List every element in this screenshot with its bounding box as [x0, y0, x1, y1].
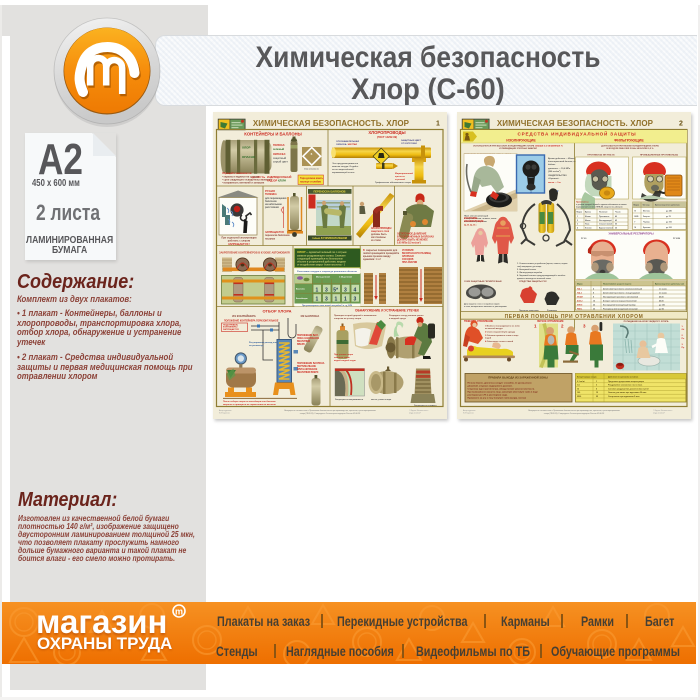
- svg-text:4: 4: [577, 227, 578, 230]
- svg-text:Графическое обозначение хлора: Графическое обозначение хлора: [375, 181, 412, 184]
- svg-text:до 240: до 240: [666, 209, 672, 212]
- svg-text:100: 100: [577, 392, 580, 394]
- svg-text:хлора (ПБХ-93). Утверждены Гос: хлора (ПБХ-93). Утверждены Гостехгортехн…: [544, 413, 604, 415]
- svg-text:Контейнеры: Контейнеры: [296, 297, 308, 300]
- svg-text:4: 4: [593, 287, 594, 290]
- svg-text:8: 8: [593, 292, 594, 294]
- svg-text:Мало до батай: Мало до батай: [316, 276, 331, 279]
- svg-text:3: 3: [344, 287, 347, 293]
- svg-text:смочить ткань: смочить ткань: [334, 357, 350, 359]
- svg-text:Часов: Часов: [615, 212, 621, 214]
- svg-text:ПРИ АВАРИИ: ПРИ АВАРИИ: [402, 261, 418, 264]
- svg-text:любой хранящейся проверяйте: любой хранящейся проверяйте: [363, 252, 400, 255]
- svg-text:Красная: Красная: [643, 227, 650, 229]
- svg-text:защитного слоя: защитного слоя: [371, 231, 390, 233]
- svg-text:Г: Г: [635, 221, 636, 223]
- svg-text:Смертельно при вдыхании 5 мин: Смертельно при вдыхании 5 мин: [608, 396, 640, 398]
- svg-text:0,1 мг/м³: 0,1 мг/м³: [577, 380, 585, 383]
- svg-text:4. Звуковой сигнал предупрежда: 4. Звуковой сигнал предупреждающий о нео…: [517, 274, 566, 277]
- svg-text:2: 2: [679, 121, 683, 128]
- svg-text:Прижимать ко рту и носу влажну: Прижимать ко рту и носу влажную ткань (ш…: [468, 397, 527, 400]
- svg-text:ПШ-1: ПШ-1: [577, 288, 582, 290]
- svg-text:Нельзя бежать, двигаться следу: Нельзя бежать, двигаться следует спокойн…: [468, 382, 533, 385]
- svg-text:зеленый: зеленый: [273, 147, 285, 151]
- svg-text:Концентрация хлора: Концентрация хлора: [577, 376, 597, 378]
- svg-text:(ГОСТ 14202-69): (ГОСТ 14202-69): [377, 135, 397, 139]
- svg-text:Аппарат сжатого воздуха баллон: Аппарат сжатого воздуха баллонный: [603, 299, 637, 302]
- svg-text:ОКРАСКА: ЖЕЛТАЯ: ОКРАСКА: ЖЕЛТАЯ: [336, 143, 357, 146]
- svg-text:СОСУДОВ: СОСУДОВ: [402, 259, 414, 261]
- svg-text:только В ГОРИЗОНТАЛЬНОМ: только В ГОРИЗОНТАЛЬНОМ: [312, 237, 347, 240]
- svg-text:ТЕЛЕЖКА: ТЕЛЕЖКА: [265, 193, 277, 196]
- svg-text:хлора (ПБХ-93). Утверждены Гос: хлора (ПБХ-93). Утверждены Гостехгортехн…: [300, 413, 360, 415]
- svg-text:Предельно допустимая концентра: Предельно допустимая концентрация: [608, 381, 644, 383]
- svg-text:до 70: до 70: [666, 216, 671, 218]
- svg-text:до 60: до 60: [659, 308, 664, 310]
- svg-text:УСЛОВИЯ: УСЛОВИЯ: [402, 250, 414, 252]
- svg-text:Клапан: Клапан: [585, 228, 591, 230]
- svg-text:БЕЗОПАСНОГО РАЗМЕЩ.: БЕЗОПАСНОГО РАЗМЕЩ.: [402, 252, 432, 255]
- svg-text:ПОЛОЖЕНИЕ БАЛ-: ПОЛОЖЕНИЕ БАЛ-: [297, 334, 319, 337]
- svg-text:ХИМИЧЕСКАЯ БЕЗОПАСНОСТЬ. ХЛОР: ХИМИЧЕСКАЯ БЕЗОПАСНОСТЬ. ХЛОР: [253, 119, 410, 128]
- svg-text:УНИВЕРСАЛЬНЫЕ РЕСПИРАТОРЫ: УНИВЕРСАЛЬНЫЕ РЕСПИРАТОРЫ: [609, 232, 654, 236]
- svg-text:ИЗОЛИРУЮЩИЕ: ИЗОЛИРУЮЩИЕ: [506, 139, 536, 143]
- svg-text:2.: 2.: [682, 335, 684, 337]
- svg-text:После отбора хлора из контейне: После отбора хлора из контейнера или бал…: [223, 400, 276, 403]
- svg-text:ПОЛОЖЕНИЕ КОНТЕЙНЕРА ГОРИЗОНТА: ПОЛОЖЕНИЕ КОНТЕЙНЕРА ГОРИЗОНТАЛЬНОЕ: [224, 320, 279, 323]
- svg-text:12: 12: [577, 388, 579, 390]
- svg-text:4 Обеспечить тепло и покой: 4 Обеспечить тепло и покой: [485, 340, 514, 343]
- svg-text:Защитн.: Защитн.: [643, 216, 651, 218]
- svg-text:Изолирующий противогаз автоном: Изолирующий противогаз автономный: [603, 295, 638, 298]
- svg-text:тки) защищают до конца: тки) защищают до конца: [517, 266, 542, 268]
- svg-text:В ОПОРОЖНЕННЫХ БАЛЛОНАХ: В ОПОРОЖНЕННЫХ БАЛЛОНАХ: [397, 236, 434, 239]
- svg-text:• исправность вентилей и заглу: • исправность вентилей и заглушек: [222, 182, 265, 185]
- svg-text:расстояния: расстояния: [265, 206, 279, 209]
- svg-text:25: 25: [596, 396, 598, 398]
- svg-text:запахом раздражающего запаха.: запахом раздражающего запаха. Сжижают: [297, 256, 347, 258]
- svg-text:Запрещается выравнивать: Запрещается выравнивать: [335, 399, 364, 401]
- svg-text:Выпущено в соответствии с Прав: Выпущено в соответствии с Правилами безо…: [284, 410, 375, 412]
- svg-text:ЛЕГКОЕ ОТРАВЛЕНИЕ: ЛЕГКОЕ ОТРАВЛЕНИЕ: [537, 320, 564, 323]
- svg-text:ОТ КОРРОЗИИ: ОТ КОРРОЗИИ: [401, 143, 417, 145]
- svg-text:нержавеющей стали: нержавеющей стали: [332, 171, 355, 174]
- svg-text:При возможности смочить лицо,: При возможности смочить лицо, смоченую о…: [468, 391, 539, 394]
- svg-text:до 120: до 120: [659, 304, 665, 306]
- svg-text:3: 3: [577, 224, 578, 226]
- svg-text:РУ 60М: РУ 60М: [673, 238, 680, 240]
- svg-text:Проверка старой дыркой с аммиа: Проверка старой дыркой с аммиачном: [334, 314, 377, 317]
- svg-text:ЗАПРЕЩАЕТСЯ: ЗАПРЕЩАЕТСЯ: [223, 328, 239, 331]
- svg-text:труда и жизни»: труда и жизни»: [653, 413, 665, 415]
- svg-text:до 100: до 100: [666, 227, 672, 229]
- svg-text:Знак опасности: Знак опасности: [304, 169, 319, 171]
- svg-text:труда и жизни»: труда и жизни»: [409, 413, 421, 415]
- svg-text:Л.И.Харченко: Л.И.Харченко: [219, 413, 230, 415]
- svg-text:ВВЕРХ: ВВЕРХ: [297, 344, 305, 346]
- svg-text:2: 2: [561, 324, 564, 329]
- svg-text:Тип кор.: Тип кор.: [643, 205, 651, 207]
- svg-text:место утечки хлора: место утечки хлора: [371, 399, 392, 401]
- svg-text:ЗАЩИТНЫЙ ЦВЕТ: ЗАЩИТНЫЙ ЦВЕТ: [401, 139, 422, 142]
- svg-text:40: 40: [615, 215, 617, 218]
- svg-text:нормальной степени ППВ-95, защ: нормальной степени ППВ-95, защита газ-об…: [576, 206, 623, 209]
- svg-text:ПРАВИЛА ВЫХОДА ИЗ ЗАРАЖЕННОЙ З: ПРАВИЛА ВЫХОДА ИЗ ЗАРАЖЕННОЙ ЗОНЫ: [488, 376, 548, 380]
- svg-text:защитный: защитный: [273, 156, 287, 160]
- svg-text:монтаж сосуда. Отдайте: монтаж сосуда. Отдайте: [332, 165, 359, 168]
- svg-text:«Украина»:: «Украина»:: [548, 178, 560, 180]
- svg-text:3: 3: [354, 297, 357, 303]
- svg-text:Щ-20, Щ-20 к: Щ-20, Щ-20 к: [464, 225, 477, 227]
- svg-text:Стараться идти против ветра, о: Стараться идти против ветра, обходя низк…: [468, 388, 536, 391]
- svg-text:АСВ-2: АСВ-2: [577, 299, 582, 302]
- svg-text:1: 1: [577, 216, 578, 218]
- svg-text:РВЛ-1: РВЛ-1: [577, 308, 582, 310]
- svg-text:Шланговый противогаз самовсасы: Шланговый противогаз самовсасывающий: [603, 287, 642, 290]
- svg-text:стрелкой: стрелкой: [395, 178, 406, 181]
- svg-text:раствором рот 2% и растворами: раствором рот 2% и растворами соды.: [468, 395, 509, 397]
- svg-text:крышки проемов между: крышки проемов между: [363, 256, 391, 258]
- svg-text:на чистый воздух: на чистый воздух: [485, 327, 504, 330]
- svg-text:ПОПАДАНИЕ НА КОЖУ ЖИДКОГО ХЛОР: ПОПАДАНИЕ НА КОЖУ ЖИДКОГО ХЛОРА: [624, 320, 669, 323]
- svg-text:40-50: 40-50: [659, 295, 664, 298]
- svg-text:Кислородный изолирующий прибор: Кислородный изолирующий прибор: [603, 303, 637, 306]
- svg-text:ДОПУСКАЮТСЯ ПРИ НИЗКИХ КОНЦЕНТ: ДОПУСКАЮТСЯ ПРИ НИЗКИХ КОНЦЕНТРАЦИЯХ ХЛО…: [601, 145, 659, 148]
- svg-text:2 Снять загрязненную одежду: 2 Снять загрязненную одежду: [485, 332, 516, 334]
- svg-text:ЗАПРЕЩАЕТСЯ !: ЗАПРЕЩАЕТСЯ !: [228, 242, 250, 246]
- svg-text:ЛОНА НАКЛОННОЕ: ЛОНА НАКЛОННОЕ: [297, 337, 320, 340]
- svg-text:При утечке хлора: При утечке хлора: [334, 354, 354, 356]
- svg-text:благоприятный баллон, не: благоприятный баллон, не: [548, 160, 577, 163]
- svg-text:ХИМИЧЕСКАЯ БЕЗОПАСНОСТЬ. ХЛОР: ХИМИЧЕСКАЯ БЕЗОПАСНОСТЬ. ХЛОР: [497, 119, 654, 128]
- svg-text:16: 16: [593, 300, 595, 302]
- svg-text:3 Обильно промыть глаза и лицо: 3 Обильно промыть глаза и лицо: [485, 334, 519, 337]
- svg-text:3.: 3.: [682, 344, 684, 346]
- svg-text:2500: 2500: [577, 396, 581, 398]
- svg-text:байпас: байпас: [548, 163, 556, 166]
- svg-text:ИЗ КОНТЕЙНЕРА: ИЗ КОНТЕЙНЕРА: [232, 314, 256, 318]
- svg-text:спиртом на утечку хлора: спиртом на утечку хлора: [334, 318, 362, 320]
- svg-text:Наименование средств защиты: Наименование средств защиты: [603, 284, 632, 286]
- svg-text:давление — 19,6 МПа: давление — 19,6 МПа: [548, 168, 571, 170]
- svg-text:3. Фильтрующая коробка: 3. Фильтрующая коробка: [517, 271, 543, 274]
- svg-text:2: 2: [557, 189, 559, 193]
- svg-text:ОСТАТОЧНОЕ ДАВЛЕНИЕ: ОСТАТОЧНОЕ ДАВЛЕНИЕ: [397, 233, 427, 236]
- svg-text:щиток со: щиток со: [395, 176, 405, 178]
- svg-text:45: 45: [615, 219, 617, 222]
- svg-text:ИСПОЛЬЗУЮТСЯ ПРИ ВЫСОКИХ КОНЦЕ: ИСПОЛЬЗУЮТСЯ ПРИ ВЫСОКИХ КОНЦЕНТРАЦИЯХ Х…: [473, 145, 563, 148]
- svg-text:Что предусматривается: Что предусматривается: [332, 163, 359, 165]
- svg-text:паспорт и клеймо: паспорт и клеймо: [300, 181, 322, 184]
- svg-text:3: 3: [583, 324, 586, 329]
- svg-text:И ЛИКВИДАЦИИ ХЛОРНЫХ АВАРИЙ: И ЛИКВИДАЦИИ ХЛОРНЫХ АВАРИЙ: [499, 147, 537, 150]
- svg-text:1: 1: [596, 381, 597, 383]
- svg-text:Опасно для жизни при вдыхании: Опасно для жизни при вдыхании 30 мин: [608, 392, 647, 394]
- svg-text:В: В: [363, 250, 365, 252]
- svg-text:3: 3: [325, 297, 328, 303]
- svg-text:ИЛИ НАКЛОННОЕ: ИЛИ НАКЛОННОЕ: [297, 368, 318, 371]
- svg-text:Действие на организм человека: Действие на организм человека: [608, 375, 639, 378]
- svg-text:При размещении в зоне жилой за: При размещении в зоне жилой застройки 5 …: [302, 304, 352, 307]
- svg-text:из стали: из стали: [371, 240, 381, 242]
- svg-text:Спасательный: Спасательный: [599, 223, 612, 226]
- svg-text:1: 1: [316, 287, 319, 293]
- svg-text:45-60: 45-60: [659, 299, 664, 302]
- svg-text:Маркировочный: Маркировочный: [395, 172, 414, 175]
- svg-text:1: 1: [335, 297, 338, 303]
- svg-text:1. Спасательные устройства (щи: 1. Спасательные устройства (щиты, сапоги…: [517, 262, 568, 265]
- svg-text:ХЛОР: ХЛОР: [242, 146, 250, 150]
- svg-text:8: 8: [593, 296, 594, 298]
- svg-text:1-6: 1-6: [577, 385, 580, 387]
- svg-text:водой: водой: [485, 337, 492, 340]
- svg-text:ОПАСНО: ОПАСНО: [242, 155, 256, 159]
- svg-text:БКФ: БКФ: [635, 215, 639, 218]
- svg-text:3: 3: [325, 287, 328, 293]
- svg-text:КИП-8: КИП-8: [577, 304, 582, 306]
- svg-text:6: 6: [596, 388, 597, 390]
- svg-text:Название: Название: [599, 212, 607, 214]
- svg-text:серый цвет: серый цвет: [273, 160, 289, 164]
- svg-text:ВЕРТИКАЛЬНОЕ: ВЕРТИКАЛЬНОЕ: [297, 365, 317, 368]
- svg-text:НАДЗОР ХЛОРА: НАДЗОР ХЛОРА: [267, 180, 286, 183]
- svg-text:ОБНАРУЖЕНИЕ И УСТРАНЕНИЕ УТЕЧЕ: ОБНАРУЖЕНИЕ И УСТРАНЕНИЕ УТЕЧЕК: [355, 309, 419, 313]
- svg-text:ВЕНТИЛЕМ: ВЕНТИЛЕМ: [297, 341, 310, 343]
- svg-text:следующей хранящийся на безопа: следующей хранящийся на безопасном: [297, 258, 343, 261]
- svg-text:Время защитного действия: Время защитного действия: [655, 204, 680, 207]
- svg-text:на руках: на руках: [265, 237, 276, 240]
- svg-text:СВИДЕТЕЛЬСТВО: СВИДЕТЕЛЬСТВО: [548, 175, 567, 177]
- svg-text:25: 25: [593, 304, 595, 306]
- svg-text:1: 1: [534, 324, 537, 329]
- svg-text:ЗАКРЕПЛЕНИЕ КОНТЕЙНЕРОВ В КУЗО: ЗАКРЕПЛЕНИЕ КОНТЕЙНЕРОВ В КУЗОВЕ АВТОМОБ…: [219, 252, 290, 255]
- svg-text:По: По: [682, 338, 685, 340]
- svg-text:ФИЛЬТРУЮЩИЕ: ФИЛЬТРУЮЩИЕ: [614, 139, 644, 143]
- svg-text:В ВОЗДУХЕ РАБОЧЕЙ ЗОНЫ НЕ БОЛЕ: В ВОЗДУХЕ РАБОЧЕЙ ЗОНЫ НЕ БОЛЕЕ 0,5 %: [607, 147, 654, 150]
- svg-text:димости выхода из опасной зоны: димости выхода из опасной зоны: [517, 277, 551, 280]
- svg-text:12: 12: [596, 392, 598, 394]
- svg-text:ХЛОРОПРОВОДЫ: ХЛОРОПРОВОДЫ: [371, 228, 392, 230]
- svg-text:РУ 60: РУ 60: [581, 238, 587, 240]
- svg-text:Запрещается сливать: Запрещается сливать: [414, 405, 437, 407]
- svg-text:ПШ-2: ПШ-2: [577, 292, 582, 294]
- svg-text:движений, стараясь задерживать: движений, стараясь задерживать дыхание.: [468, 385, 513, 388]
- svg-text:Выпущено в соответствии с Прав: Выпущено в соответствии с Правилами безо…: [528, 410, 619, 412]
- svg-text:до 100: до 100: [666, 221, 672, 223]
- svg-text:ХЛОРОПРОВОДЫ: ХЛОРОПРОВОДЫ: [368, 130, 405, 135]
- svg-text:ОКРАСКА:: ОКРАСКА:: [273, 152, 286, 156]
- svg-text:1 Вынести пострадавшего из зон: 1 Вынести пострадавшего из зоны: [485, 326, 520, 328]
- svg-text:ОТБОР ХЛОРА: ОТБОР ХЛОРА: [262, 309, 291, 314]
- svg-text:2. Напорный шланг: 2. Напорный шланг: [517, 268, 536, 271]
- svg-text:25: 25: [615, 228, 617, 230]
- svg-text:по не закреплённой: по не закреплённой: [332, 168, 354, 171]
- svg-text:не огран.: не огран.: [659, 288, 668, 290]
- svg-text:Раздражение слизистых глаз и н: Раздражение слизистых глаз и носа: [608, 385, 643, 387]
- svg-text:по ротаметру: по ротаметру: [249, 345, 264, 347]
- svg-text:Противогаз: Противогаз: [599, 216, 609, 218]
- svg-text:Регулировать расход хлора: Регулировать расход хлора: [249, 342, 280, 344]
- svg-text:Шланговый противогаз с воздухо: Шланговый противогаз с воздуходувкой: [603, 291, 640, 294]
- svg-text:5*: 5*: [333, 287, 338, 293]
- svg-text:Пр: Пр: [682, 347, 685, 349]
- svg-text:1.: 1.: [682, 326, 684, 328]
- svg-text:2: 2: [577, 220, 578, 222]
- svg-text:3: 3: [596, 385, 597, 387]
- svg-text:ТЯЖЕЛОЕ ОТРАВЛЕНИЕ: ТЯЖЕЛОЕ ОТРАВЛЕНИЕ: [464, 320, 494, 323]
- svg-text:КОНТЕЙНЕРЫ И БАЛЛОНЫ: КОНТЕЙНЕРЫ И БАЛЛОНЫ: [244, 132, 301, 137]
- svg-text:Респиратор вентилируемый легоч: Респиратор вентилируемый легочный: [603, 307, 638, 310]
- svg-text:ПОЛОСА:: ПОЛОСА:: [273, 143, 285, 147]
- svg-text:60: 60: [615, 224, 617, 226]
- svg-text:Л.И.Харченко: Л.И.Харченко: [463, 413, 474, 415]
- svg-text:водой жидкой соды: водой жидкой соды: [334, 359, 356, 362]
- svg-text:ХЛОРНЫХ: ХЛОРНЫХ: [402, 256, 414, 258]
- svg-text:и газа, аппаратного контакта с: и газа, аппаратного контакта с растворам…: [464, 306, 507, 308]
- svg-text:не огран.: не огран.: [659, 292, 668, 294]
- svg-text:ПРОТИВОГАЗ ИП ПКФ-95: ПРОТИВОГАЗ ИП ПКФ-95: [587, 154, 615, 157]
- svg-text:Черная: Черная: [643, 221, 650, 223]
- svg-text:масса — 9 кг: масса — 9 кг: [548, 182, 561, 184]
- svg-text:зданиями: 1 х 2: зданиями: 1 х 2: [363, 259, 381, 261]
- svg-text:ОЧКИ ЗАЩИТНЫЕ ГЕРМЕТИЧНЫЕ: ОЧКИ ЗАЩИТНЫЕ ГЕРМЕТИЧНЫЕ: [464, 280, 502, 283]
- svg-text:ДОЛЖНО БЫТЬ НЕ МЕНЕЕ: ДОЛЖНО БЫТЬ НЕ МЕНЕЕ: [397, 240, 428, 242]
- svg-text:(200 кгс/см²): (200 кгс/см²): [548, 170, 561, 173]
- svg-text:закрыть и проверить на гермети: закрыть и проверить на герметичность вен…: [223, 404, 276, 406]
- svg-text:С 50 до батай: С 50 до батай: [339, 276, 353, 279]
- svg-text:ПРОМЫШЛЕННЫЕ ПРОТИВОГАЗЫ: ПРОМЫШЛЕННЫЕ ПРОТИВОГАЗЫ: [640, 154, 678, 157]
- svg-text:от воздействия закрыт более ки: от воздействия закрыт более кислотах - 1: [297, 264, 346, 267]
- svg-text:Шланг: Шланг: [585, 216, 591, 218]
- svg-text:Время действия — 45мин: Время действия — 45мин: [548, 157, 575, 160]
- svg-text:1: 1: [316, 297, 319, 303]
- svg-text:объекте в разрешенной действия: объекте в разрешенной действия, жидким: [297, 261, 346, 264]
- svg-text:Время: Время: [585, 212, 591, 214]
- svg-text:Желтая: Желтая: [643, 210, 650, 212]
- svg-text:СРЕДСТВА ИНДИВИДУАЛЬНОЙ ЗАЩИТЫ: СРЕДСТВА ИНДИВИДУАЛЬНОЙ ЗАЩИТЫ: [518, 130, 637, 137]
- svg-text:ПОЛОЖЕНИЕ БАЛЛОНА: ПОЛОЖЕНИЕ БАЛЛОНА: [297, 362, 325, 365]
- svg-text:Изолирующий: Изолирующий: [599, 219, 612, 222]
- svg-text:Разрядить сосуд своими умело: Разрядить сосуд своими умело: [389, 315, 424, 317]
- svg-text:изготовлены: изготовлены: [371, 237, 386, 239]
- svg-text:4: 4: [354, 287, 357, 293]
- svg-text:ИЗ БАЛЛОНА: ИЗ БАЛЛОНА: [301, 314, 320, 318]
- svg-text:закрытых помещениях для: закрытых помещениях для: [366, 250, 398, 252]
- svg-text:должны быть: должны быть: [371, 233, 387, 236]
- svg-text:Баллоны: Баллоны: [296, 289, 305, 291]
- svg-text:ПЕРЕНОСКА БАЛЛОНОВ: ПЕРЕНОСКА БАЛЛОНОВ: [313, 190, 345, 194]
- svg-text:1: 1: [344, 297, 347, 303]
- svg-text:ИЗОЛИРУЮЩИЕ: ИЗОЛИРУЮЩИЕ: [464, 220, 484, 223]
- svg-text:Вдыхательный: Вдыхательный: [599, 227, 613, 230]
- svg-text:в жидкой среде: в жидкой среде: [389, 317, 407, 320]
- svg-text:1: 1: [436, 121, 440, 128]
- svg-text:Время защитного действия, мин: Время защитного действия, мин: [655, 283, 684, 286]
- svg-text:Расстояние сосудов с хлором до: Расстояние сосудов с хлором до различных…: [297, 270, 357, 273]
- svg-text:Об: Об: [682, 328, 686, 331]
- svg-text:Сильное раздражение дыхательны: Сильное раздражение дыхательных путей: [608, 387, 649, 390]
- svg-text:30: 30: [593, 308, 595, 310]
- svg-text:ВЕНТИЛЕМ ВВЕРХ: ВЕНТИЛЕМ ВВЕРХ: [297, 372, 319, 374]
- svg-text:СРЕДСТВА ЗАЩИТЫ РУК: СРЕДСТВА ЗАЩИТЫ РУК: [519, 280, 547, 283]
- svg-text:m: m: [175, 607, 183, 617]
- svg-text:Пояс: Пояс: [585, 224, 589, 226]
- svg-text:ОПОЗНАВАТЕЛЬНАЯ: ОПОЗНАВАТЕЛЬНАЯ: [336, 140, 360, 143]
- svg-text:ИП-4М: ИП-4М: [577, 295, 583, 298]
